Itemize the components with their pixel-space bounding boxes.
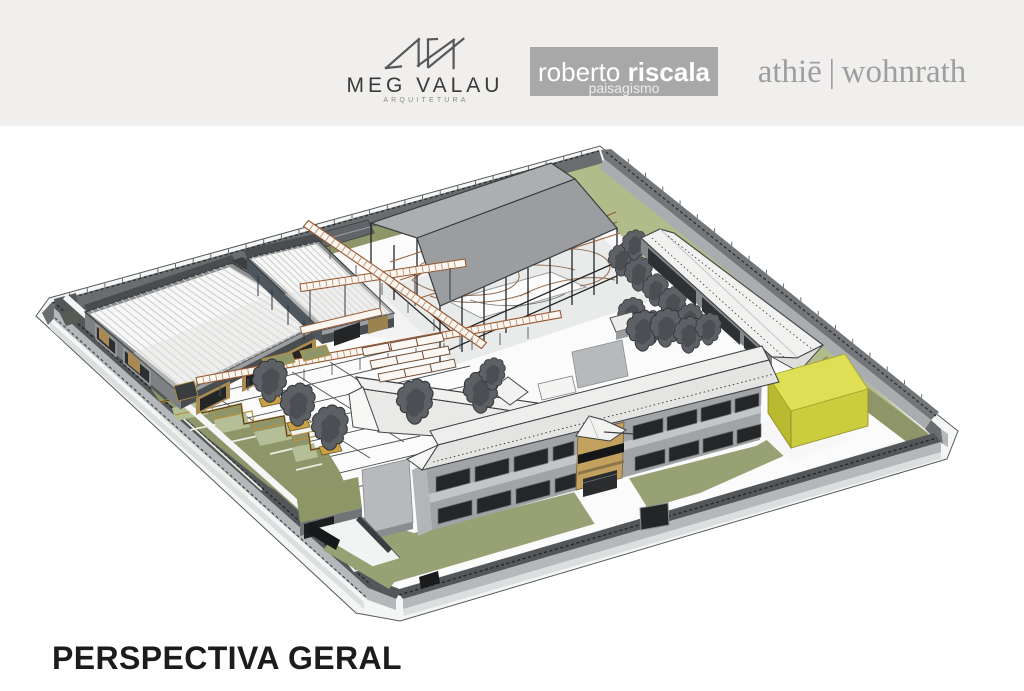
svg-text:paisagismo: paisagismo xyxy=(589,80,660,96)
svg-text:MEG VALAU: MEG VALAU xyxy=(347,74,504,97)
svg-text:ARQUITETURA: ARQUITETURA xyxy=(383,97,468,104)
svg-text:PERSPECTIVA GERAL: PERSPECTIVA GERAL xyxy=(52,640,402,676)
svg-text:athiē | wohnrath: athiē | wohnrath xyxy=(758,54,967,90)
